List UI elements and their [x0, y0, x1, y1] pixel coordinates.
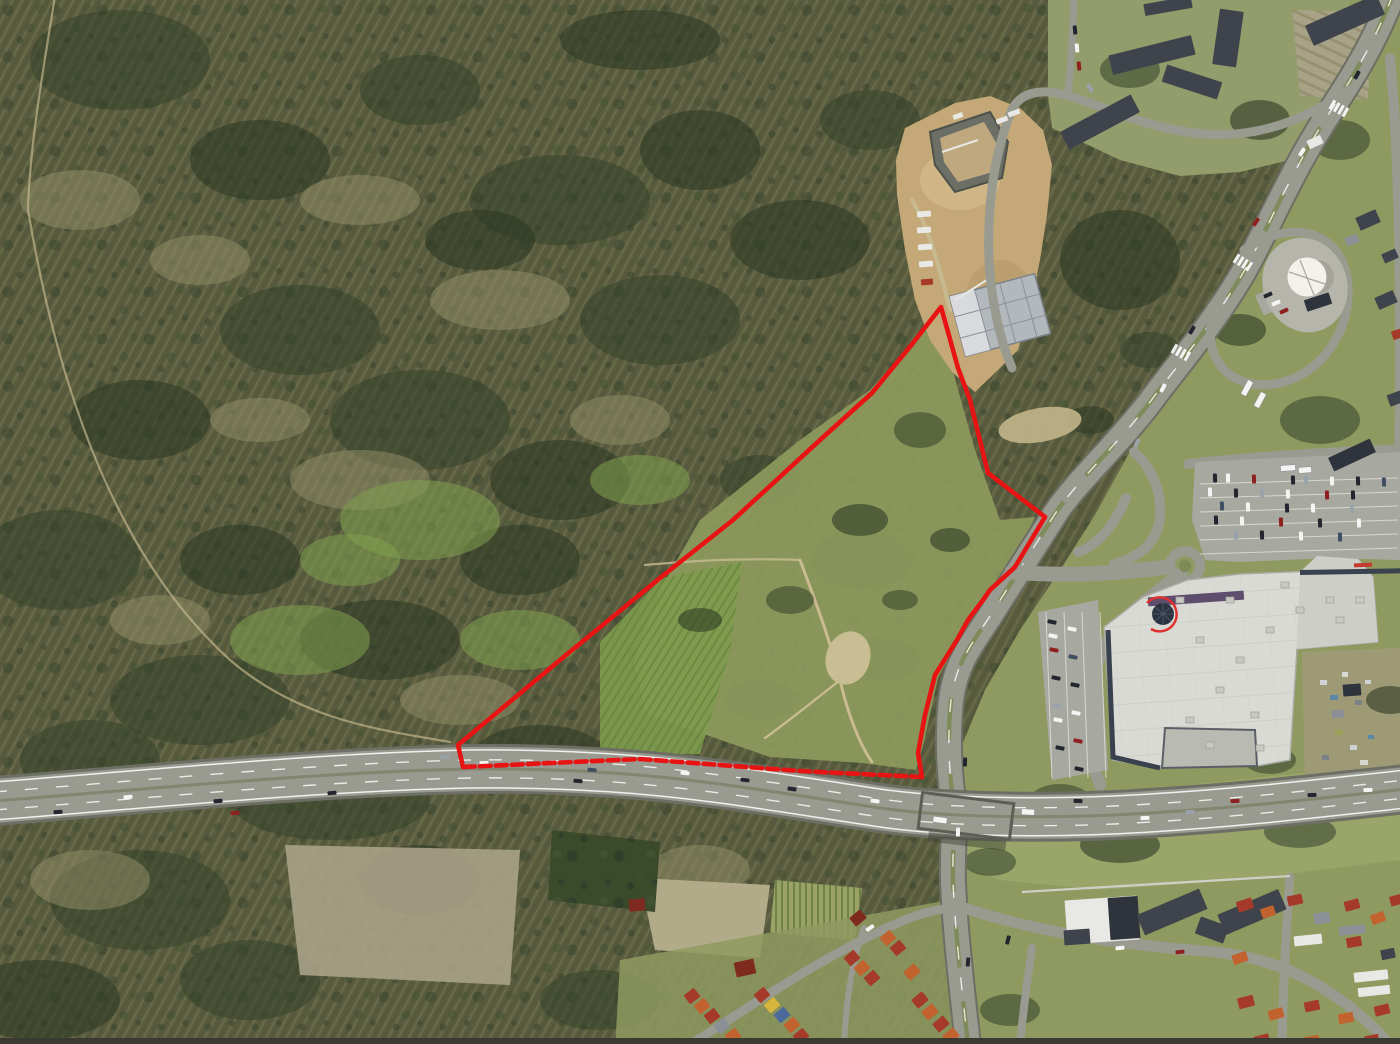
truck — [1021, 809, 1034, 816]
car — [1226, 473, 1230, 482]
building — [917, 211, 931, 218]
junk-yard — [1302, 648, 1400, 780]
car — [587, 768, 596, 773]
car — [440, 755, 449, 759]
car — [1240, 516, 1244, 525]
car — [1214, 515, 1218, 524]
car — [1075, 43, 1080, 52]
car — [1279, 517, 1283, 526]
rooftop-unit — [1196, 637, 1204, 643]
car — [1213, 473, 1217, 482]
car — [956, 827, 960, 836]
car — [1234, 530, 1238, 539]
aerial-map-canvas — [0, 0, 1400, 1044]
clutter-item — [1365, 680, 1371, 684]
car — [1175, 950, 1184, 955]
rooftop-unit — [1356, 597, 1364, 603]
car — [327, 791, 336, 796]
aerial-map — [0, 0, 1400, 1044]
car — [1356, 476, 1360, 485]
truck — [1280, 464, 1295, 471]
car — [53, 810, 62, 815]
clutter-item — [1322, 755, 1329, 760]
rooftop-unit — [1281, 582, 1289, 588]
clutter-item — [1360, 760, 1368, 765]
car — [1260, 488, 1264, 497]
building — [918, 244, 932, 251]
clutter-item — [1320, 680, 1327, 685]
building — [1064, 929, 1091, 946]
car — [1252, 474, 1256, 483]
rooftop-unit — [1296, 607, 1304, 613]
car — [1140, 816, 1149, 820]
car — [1338, 532, 1342, 541]
car — [1185, 810, 1194, 814]
rooftop-unit — [1206, 742, 1214, 748]
car — [1286, 489, 1290, 498]
building — [1108, 896, 1141, 940]
car — [1073, 25, 1078, 34]
building — [921, 279, 933, 286]
car — [1330, 476, 1334, 485]
clutter-item — [1355, 700, 1362, 705]
building — [1332, 710, 1345, 719]
car — [1291, 475, 1295, 484]
car — [963, 757, 967, 766]
car — [1325, 490, 1329, 499]
car — [1351, 490, 1355, 499]
clutter-item — [1335, 730, 1343, 735]
car — [966, 957, 971, 966]
car — [573, 779, 582, 784]
rooftop-unit — [1336, 617, 1344, 623]
rooftop-unit — [1186, 717, 1194, 723]
rooftop-unit — [1266, 627, 1274, 633]
building — [919, 261, 933, 268]
car — [123, 795, 132, 800]
car — [1304, 475, 1308, 484]
clutter-item — [1350, 745, 1357, 750]
field-west — [285, 845, 520, 985]
rooftop-unit — [1226, 597, 1234, 603]
rooftop-unit — [1216, 687, 1224, 693]
car — [1285, 503, 1289, 512]
building — [629, 898, 646, 911]
rooftop-unit — [1256, 745, 1264, 751]
clutter-item — [1330, 695, 1338, 700]
mall-red-corner — [1354, 563, 1372, 568]
car — [1382, 477, 1386, 486]
car — [1260, 530, 1264, 539]
car — [1363, 788, 1372, 792]
car — [1073, 799, 1082, 803]
car — [1220, 501, 1224, 510]
roundabout-island — [1179, 560, 1191, 572]
car — [1318, 518, 1322, 527]
car — [230, 811, 239, 816]
mall-access-road — [1012, 567, 1168, 574]
car — [1350, 504, 1354, 513]
rooftop-unit — [1236, 657, 1244, 663]
car — [1311, 503, 1315, 512]
rooftop-unit — [1251, 712, 1259, 718]
building — [1343, 683, 1362, 696]
car — [213, 799, 222, 804]
car — [1246, 502, 1250, 511]
rooftop-unit — [1326, 597, 1334, 603]
car — [1299, 531, 1303, 540]
building — [1313, 911, 1330, 924]
car — [1208, 487, 1212, 496]
clutter-item — [1368, 735, 1374, 739]
image-bottom-edge — [0, 1038, 1400, 1044]
truck — [1298, 467, 1311, 474]
building — [917, 227, 931, 234]
rooftop-unit — [1176, 597, 1184, 603]
car — [1230, 799, 1239, 803]
car — [1077, 61, 1082, 70]
car — [1357, 518, 1361, 527]
car — [1234, 488, 1238, 497]
clutter-item — [1342, 672, 1348, 677]
car — [1307, 793, 1316, 797]
